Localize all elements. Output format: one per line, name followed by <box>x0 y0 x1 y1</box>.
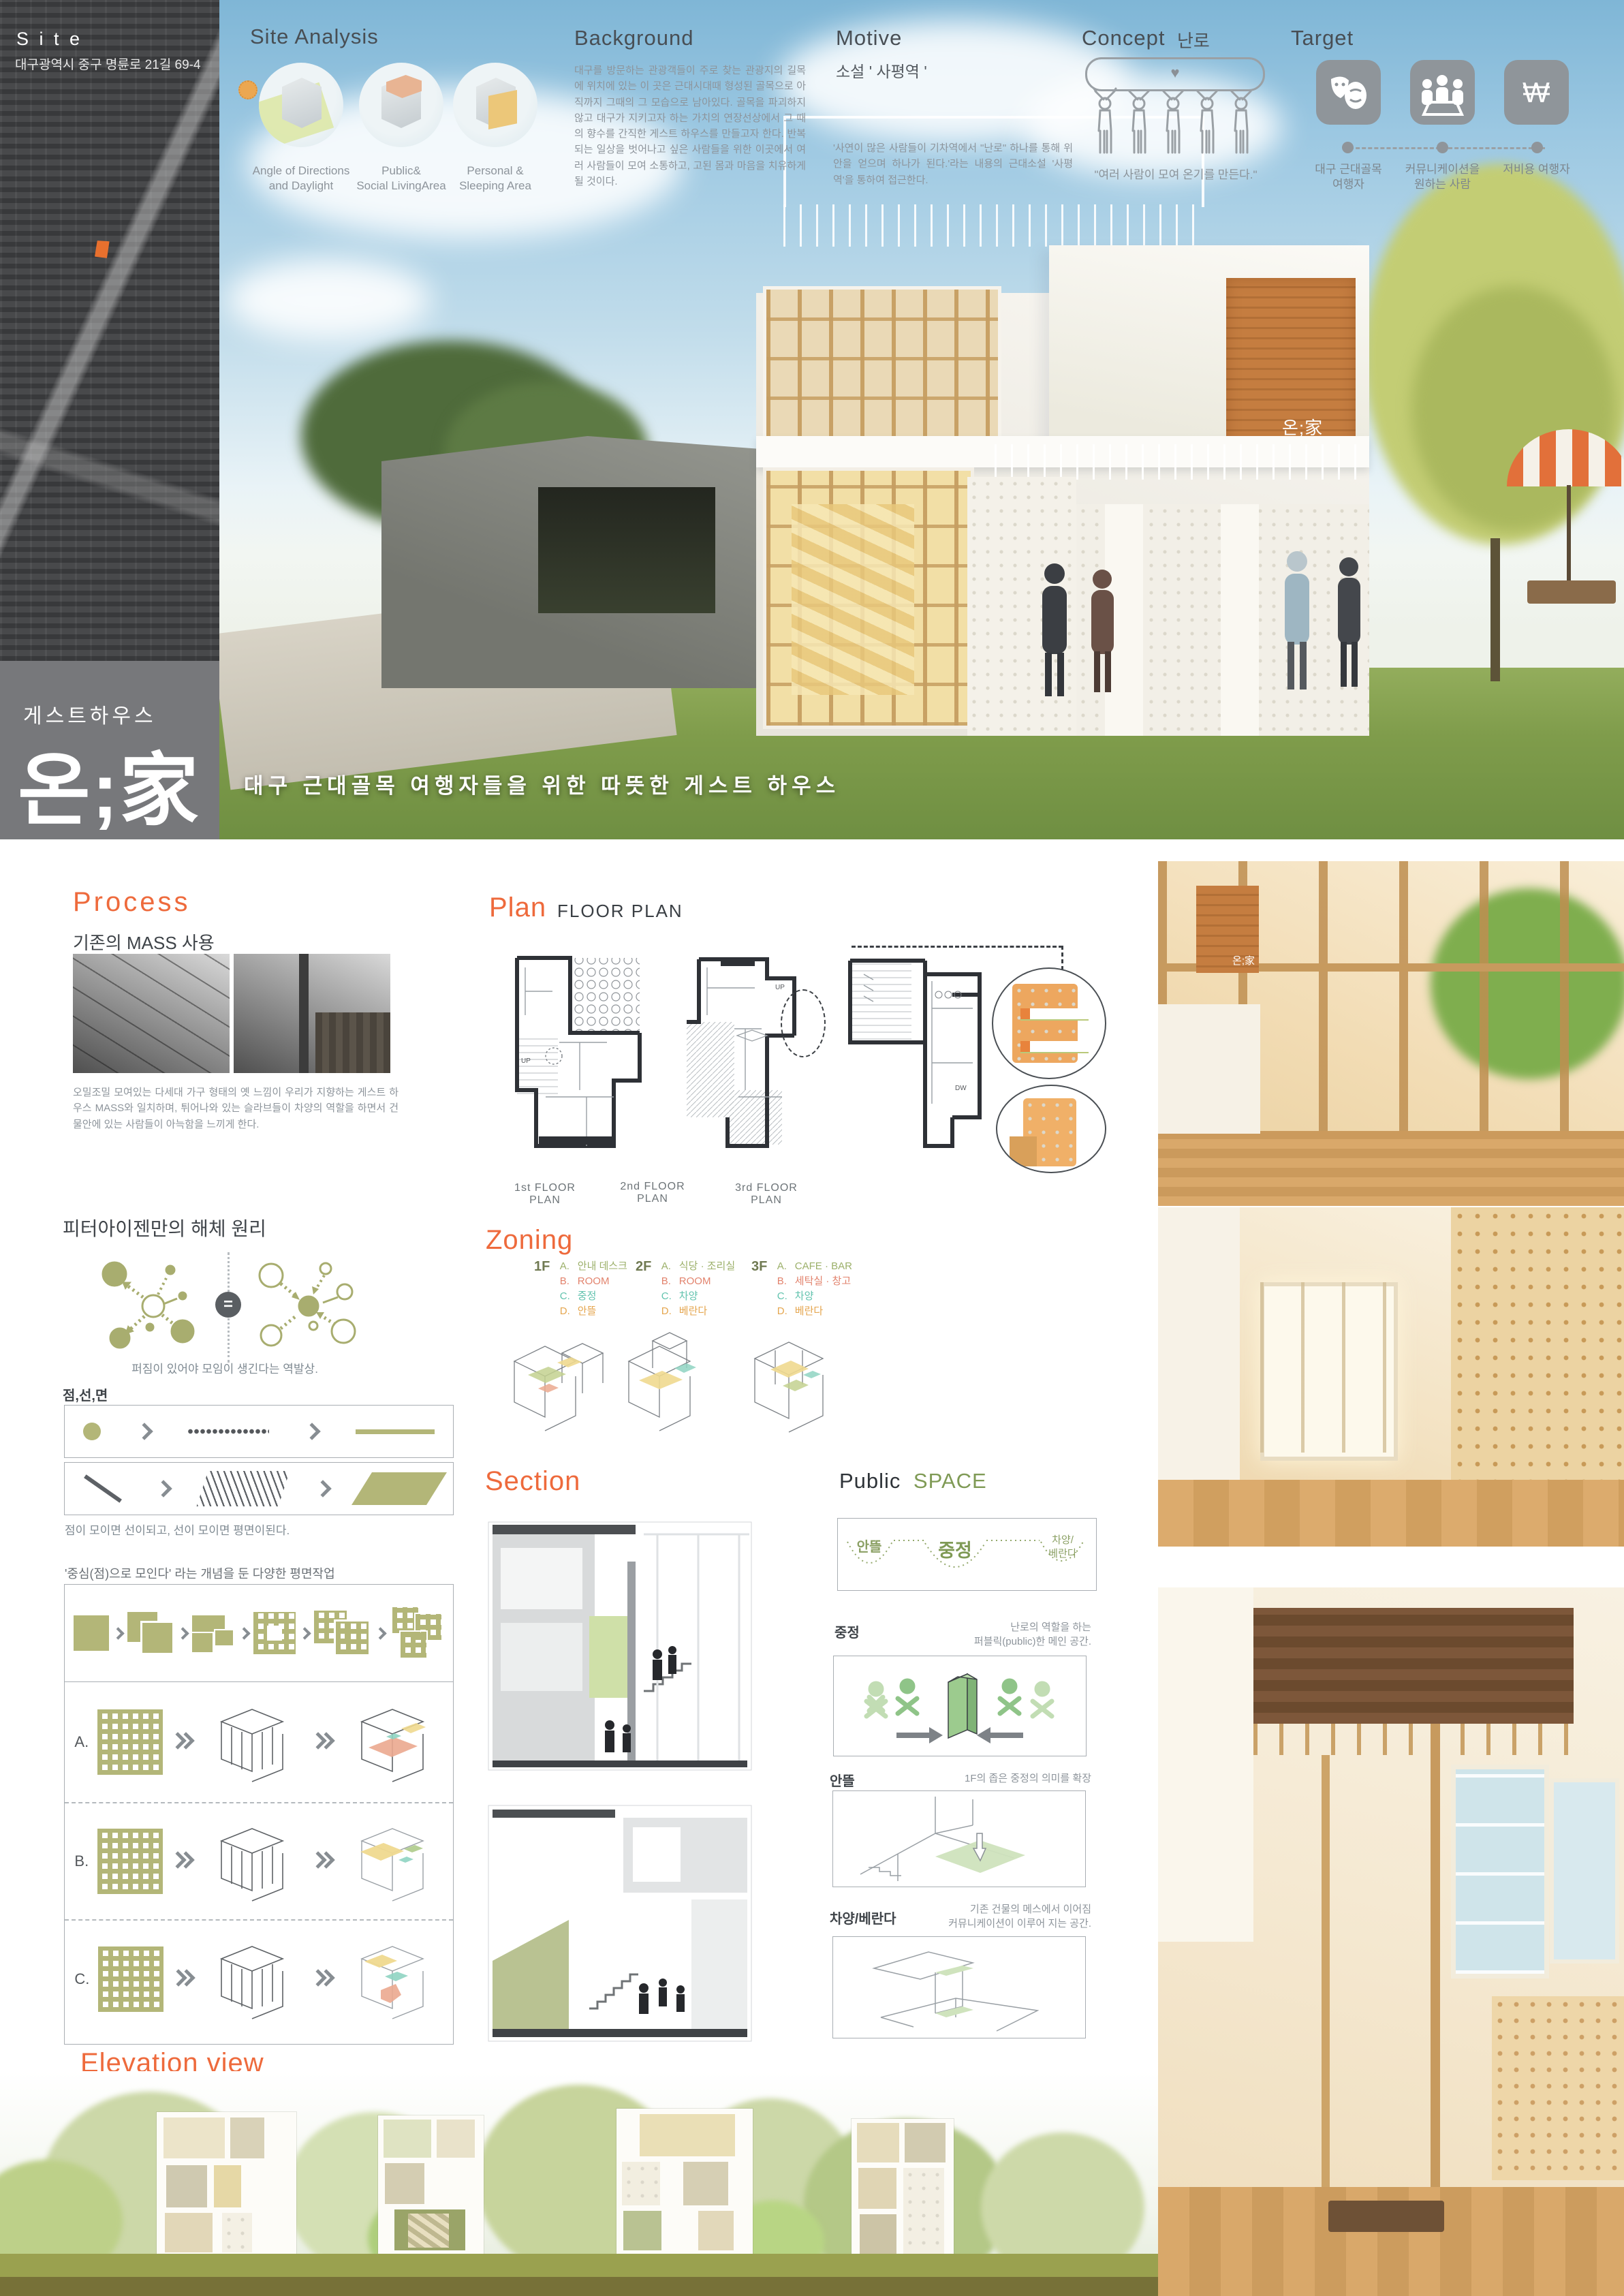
panel <box>640 2114 735 2156</box>
courtyard-desc: 난로의 역할을 하는 퍼블릭(public)한 메인 공간. <box>906 1620 1091 1649</box>
chevron-icon <box>314 1480 331 1497</box>
line-to-plane-box <box>64 1462 454 1515</box>
public-space-arc-diagram: 안뜰 중정 차양/ 베란다 <box>837 1518 1097 1591</box>
eisenman-diagram-gather <box>251 1255 366 1357</box>
cluster-pattern-squares <box>390 1607 444 1659</box>
panel <box>860 2214 896 2254</box>
svg-text:W: W <box>1522 76 1550 108</box>
dotted-line <box>187 1429 269 1434</box>
site-analysis-circle-3 <box>453 63 537 147</box>
zoning-floor-label: 1F <box>534 1259 550 1274</box>
courtyard-diagram <box>833 1656 1087 1756</box>
elevation-building-1 <box>157 2112 296 2255</box>
stair <box>408 2214 449 2248</box>
pattern-plan <box>97 1709 163 1775</box>
sky-window <box>1451 1765 1549 1979</box>
roof-railing <box>783 204 1199 247</box>
plane-concept-caption: '중심(점)으로 모인다' 라는 개념을 둔 다양한 평면작업 <box>65 1564 335 1582</box>
callout-dash-horizontal <box>852 946 1063 948</box>
elevation-ground-soil <box>0 2277 1158 2296</box>
plane-parallelogram <box>352 1472 447 1505</box>
legend-item: D.안뜰 <box>560 1304 627 1319</box>
zoning-legend: A.안내 데스크 B.ROOM C.중정 D.안뜰 <box>560 1259 627 1319</box>
elevation-building-2 <box>378 2115 484 2255</box>
site-address: 대구광역시 중구 명륜로 21길 69-4 <box>15 55 201 73</box>
bunk-mattress <box>1020 1008 1089 1019</box>
point-line-plane-title: 점,선,면 <box>63 1384 108 1404</box>
wood-floor <box>1158 1480 1624 1547</box>
legend-item: C.차양 <box>777 1289 852 1304</box>
panel <box>858 2168 896 2209</box>
double-chevron <box>172 1972 193 1987</box>
plan-transformation-box: A. B. C. <box>64 1584 454 2045</box>
elevation-building-3 <box>616 2109 753 2255</box>
theater-masks-icon <box>1316 60 1381 125</box>
square <box>192 1615 225 1632</box>
pattern-square <box>336 1622 369 1654</box>
panel <box>163 2117 225 2158</box>
logo-category: 게스트하우스 <box>23 699 157 729</box>
square <box>142 1623 172 1653</box>
logo-name: 온;家 <box>18 726 200 841</box>
eisenman-title: 피터아이젠만의 해체 원리 <box>63 1214 266 1241</box>
panel <box>857 2123 899 2162</box>
massing-row-a: A. <box>65 1682 453 1803</box>
svg-text:UP: UP <box>521 1057 531 1065</box>
zoning-group-2f: 2F A.식당 · 조리실 B.ROOM C.차양 D.베란다 <box>636 1259 735 1319</box>
bunk-callout-circle-1 <box>992 967 1106 1079</box>
public-title-accent: SPACE <box>913 1469 987 1493</box>
annex-opening <box>538 487 715 613</box>
label-line: and Daylight <box>247 179 356 193</box>
eisenman-diagram-spread <box>95 1255 211 1357</box>
wireframe-axon <box>201 1701 303 1783</box>
photo-fence <box>315 1012 390 1073</box>
label-line: 대구 근대골목 <box>1296 162 1401 177</box>
floor-plan-label-1: 1st FLOOR PLAN <box>501 1182 589 1207</box>
won-currency-icon: W <box>1504 60 1569 125</box>
double-chevron <box>172 1854 192 1870</box>
window-mullions <box>1260 1282 1390 1453</box>
concept-stove-pill: ♥ <box>1085 57 1265 91</box>
umbrella-pole <box>1567 485 1571 587</box>
motive-body: '사연이 많은 사람들이 기차역에서 "난로" 하나를 통해 위안을 얻으며 하… <box>833 140 1073 188</box>
old-alley-photo-2 <box>234 954 390 1073</box>
eisenman-caption: 퍼짐이 있어야 모임이 생긴다는 역발상. <box>65 1359 385 1376</box>
meeting-people-icon <box>1410 60 1475 125</box>
floor-plan-3: DW <box>843 954 986 1151</box>
axon-mini <box>282 78 322 128</box>
panel <box>384 2120 431 2158</box>
sun-icon <box>238 80 257 99</box>
transformation-row <box>65 1585 453 1682</box>
background-title: Background <box>574 26 693 50</box>
target-label-2: 커뮤니케이션을 원하는 사람 <box>1390 162 1495 192</box>
sky-window-2 <box>1550 1778 1619 1964</box>
awning-veranda-diagram <box>832 1936 1086 2038</box>
solid-square <box>74 1615 109 1651</box>
massing-row-c: C. <box>65 1921 453 2038</box>
double-chevron <box>312 1735 332 1750</box>
panel <box>166 2165 207 2207</box>
chevron-icon <box>112 1627 125 1639</box>
legend-item: B.ROOM <box>560 1274 627 1289</box>
wood-ceiling-slats <box>1253 1608 1574 1724</box>
bunk-base <box>1010 1136 1037 1166</box>
double-pattern-squares <box>314 1611 371 1656</box>
white-wall-upper <box>1158 1587 1253 1942</box>
legend-item: A.CAFE · BAR <box>777 1259 852 1274</box>
svg-text:UP: UP <box>775 984 785 991</box>
wireframe-axon <box>201 1938 303 2020</box>
site-map-image: S i t e 대구광역시 중구 명륜로 21길 69-4 <box>0 0 219 661</box>
public-title-main: Public <box>839 1469 901 1493</box>
perforated-volume-pilaster <box>1221 504 1259 736</box>
label-line: Angle of Directions <box>247 164 356 179</box>
chevron-icon <box>176 1627 189 1639</box>
legend-item: B.ROOM <box>661 1274 735 1289</box>
people-silhouettes-right <box>1267 545 1390 702</box>
chevron-icon <box>155 1480 172 1497</box>
chevron-icon <box>298 1627 311 1639</box>
pattern-plan <box>97 1829 163 1894</box>
sleeping-zone-patch <box>488 90 517 129</box>
wood-post <box>1322 1755 1330 2191</box>
concept-keyword: 난로 <box>1177 27 1210 52</box>
legend-item: B.세탁실 · 창고 <box>777 1274 852 1289</box>
low-table <box>1328 2201 1444 2232</box>
balcony-railing <box>995 444 1369 480</box>
pattern-square <box>401 1632 426 1658</box>
elevation-strip <box>0 2071 1158 2296</box>
square <box>215 1630 233 1645</box>
wireframe-axon <box>201 1820 303 1902</box>
front-yard-diagram <box>832 1790 1086 1887</box>
legend-item: C.중정 <box>560 1289 627 1304</box>
svg-text:차양/: 차양/ <box>1052 1534 1074 1546</box>
interior-sign-text: 온;家 <box>1232 953 1255 967</box>
background-body: 대구를 방문하는 관광객들이 주로 찾는 관광지의 길목에 위치에 있는 이 곳… <box>574 63 806 189</box>
zoning-floor-label: 2F <box>636 1259 651 1274</box>
pattern-square <box>253 1612 296 1654</box>
svg-text:안뜰: 안뜰 <box>857 1539 882 1555</box>
panel <box>622 2162 660 2205</box>
row-label: B. <box>74 1852 89 1870</box>
timeline-dot <box>1437 142 1448 153</box>
heart-icon: ♥ <box>1170 64 1179 81</box>
legend-item: A.식당 · 조리실 <box>661 1259 735 1274</box>
bunk-callout-circle-2 <box>996 1085 1106 1173</box>
interior-render-2 <box>1158 1207 1624 1547</box>
zoning-axon-1f <box>497 1320 613 1442</box>
pattern-square <box>392 1607 418 1633</box>
chevron-icon <box>238 1627 251 1639</box>
courtyard-diagram-svg <box>834 1656 1086 1756</box>
overlap-squares <box>127 1612 174 1654</box>
olive-line <box>356 1429 435 1434</box>
site-analysis-label-1: Angle of Directions and Daylight <box>247 164 356 193</box>
photo-pole <box>299 954 309 1073</box>
wood-post <box>1431 1724 1440 2187</box>
legend-item: C.차양 <box>661 1289 735 1304</box>
process-subtitle: 기존의 MASS 사용 <box>73 929 215 955</box>
concept-people-diagram <box>1085 87 1261 158</box>
point-dot <box>83 1423 101 1440</box>
point-to-line-box <box>64 1405 454 1458</box>
target-card-3: W <box>1504 60 1569 125</box>
plan-title: Plan <box>489 893 546 923</box>
square <box>192 1633 213 1652</box>
equals-badge: = <box>215 1292 241 1318</box>
callout-dash-vertical <box>1061 946 1063 970</box>
colored-axon <box>341 1701 443 1783</box>
panel <box>905 2123 946 2162</box>
chevron-icon <box>374 1627 386 1639</box>
floor-plan-1: UP <box>512 954 643 1151</box>
site-analysis-title: Site Analysis <box>250 25 379 49</box>
panel <box>385 2163 424 2204</box>
motive-subtitle: 소설 ' 사평역 ' <box>836 59 927 82</box>
wood-deck <box>1158 1131 1624 1206</box>
elevation-building-4 <box>852 2119 954 2255</box>
section-drawing-2 <box>487 1804 753 2043</box>
legend-item: D.베란다 <box>661 1304 735 1319</box>
courtyard-label: 중정 <box>834 1622 860 1641</box>
zoning-axon-3f <box>738 1320 854 1442</box>
double-chevron <box>172 1735 192 1750</box>
site-analysis-label-3: Personal & Sleeping Area <box>441 164 550 193</box>
timeline-dot <box>1342 142 1354 153</box>
process-title: Process <box>73 887 191 918</box>
cloud <box>226 259 431 341</box>
awning-veranda-label: 차양/베란다 <box>830 1908 896 1927</box>
label-line: 커뮤니케이션을 <box>1390 162 1495 177</box>
concept-caption: "여러 사람이 모여 온기를 만든다." <box>1087 165 1264 182</box>
panel <box>230 2117 264 2158</box>
plan-subtitle: FLOOR PLAN <box>557 901 683 922</box>
logo-block: 게스트하우스 온;家 <box>0 661 219 839</box>
label-line: 원하는 사람 <box>1390 177 1495 192</box>
target-card-1 <box>1316 60 1381 125</box>
front-yard-diagram-svg <box>833 1791 1085 1887</box>
legend-item: D.베란다 <box>777 1304 852 1319</box>
timeline-dot <box>1531 142 1543 153</box>
target-label-3: 저비용 여행자 <box>1484 162 1589 177</box>
zoning-floor-label: 3F <box>751 1259 767 1274</box>
callout-dash-ellipse <box>781 989 826 1057</box>
zoning-group-1f: 1F A.안내 데스크 B.ROOM C.중정 D.안뜰 <box>534 1259 627 1319</box>
hatch-lines <box>197 1471 290 1506</box>
process-body: 오밀조밀 모여있는 다세대 가구 형태의 옛 느낌이 우리가 지향하는 게스트 … <box>73 1085 399 1132</box>
photo-detail <box>73 954 230 1073</box>
svg-text:베란다: 베란다 <box>1048 1548 1077 1560</box>
l-shape-squares <box>192 1613 236 1654</box>
label-line: 저비용 여행자 <box>1484 162 1589 177</box>
floor-plan-label-2: 2nd FLOOR PLAN <box>608 1181 697 1205</box>
svg-text:중정: 중정 <box>938 1540 972 1561</box>
hero-tagline: 대구 근대골목 여행자들을 위한 따뜻한 게스트 하우스 <box>244 769 1198 799</box>
line-segment <box>84 1474 122 1503</box>
massing-row-b: B. <box>65 1803 453 1921</box>
panel <box>698 2211 734 2250</box>
colored-axon <box>341 1938 443 2020</box>
interior-render-3 <box>1158 1587 1624 2296</box>
perforated-screen-lower <box>1492 1996 1624 2180</box>
site-title: S i t e <box>16 29 82 50</box>
front-yard-label: 안뜰 <box>830 1770 855 1790</box>
label-line: Social LivingArea <box>347 179 456 193</box>
interior-render-1: 온;家 <box>1158 861 1624 1206</box>
section-drawing-1 <box>487 1521 753 1771</box>
picnic-table <box>1527 580 1616 604</box>
front-yard-desc: 1F의 좁은 중정의 의미를 확장 <box>892 1771 1091 1786</box>
white-wall <box>1158 1004 1260 1134</box>
label-line: Personal & <box>441 164 550 179</box>
people-silhouettes-left <box>1022 559 1185 702</box>
awning-veranda-desc: 기존 건물의 메스에서 이어짐 커뮤니케이션이 이루어 지는 공간. <box>906 1902 1091 1931</box>
zoning-legend: A.CAFE · BAR B.세탁실 · 창고 C.차양 D.베란다 <box>777 1259 852 1319</box>
zoning-title: Zoning <box>486 1225 573 1256</box>
zoning-group-3f: 3F A.CAFE · BAR B.세탁실 · 창고 C.차양 D.베란다 <box>751 1259 852 1319</box>
label-line: 여행자 <box>1296 177 1401 192</box>
site-marker <box>93 238 111 260</box>
elevation-ground-grass <box>0 2254 1158 2277</box>
floor-plan-label-3: 3rd FLOOR PLAN <box>722 1182 811 1207</box>
section-title: Section <box>485 1466 580 1497</box>
old-alley-photo-1 <box>73 954 230 1073</box>
panel <box>222 2213 252 2252</box>
tree-right-2 <box>1411 286 1616 531</box>
target-title: Target <box>1291 26 1354 50</box>
row-label: C. <box>74 1970 89 1988</box>
site-analysis-circle-1 <box>259 63 343 147</box>
target-card-2 <box>1410 60 1475 125</box>
zoning-legend: A.식당 · 조리실 B.ROOM C.차양 D.베란다 <box>661 1259 735 1319</box>
presentation-board: 온;家 대구 근대골목 여행자들을 위한 따뜻한 게스트 하우스 S i t e… <box>0 0 1624 2296</box>
site-analysis-label-2: Public& Social LivingArea <box>347 164 456 193</box>
double-chevron <box>312 1854 332 1870</box>
interior-sign-panel: 온;家 <box>1196 886 1259 973</box>
panel <box>165 2213 213 2252</box>
svg-text:DW: DW <box>955 1085 967 1092</box>
chevron-icon <box>136 1423 153 1440</box>
label-line: Sleeping Area <box>441 179 550 193</box>
panel <box>683 2162 728 2205</box>
panel <box>214 2165 241 2207</box>
chevron-icon <box>304 1423 321 1440</box>
left-wall <box>1158 1207 1240 1493</box>
target-label-1: 대구 근대골목 여행자 <box>1296 162 1401 192</box>
equals-sign: = <box>223 1295 233 1314</box>
tree-trunk <box>1490 538 1500 681</box>
point-line-plane-caption: 점이 모이면 선이되고, 선이 모이면 평면이된다. <box>65 1521 290 1538</box>
concept-title: Concept <box>1082 26 1165 50</box>
panel <box>437 2120 475 2158</box>
awning-veranda-diagram-svg <box>833 1937 1085 2038</box>
site-analysis-circle-2 <box>359 63 443 147</box>
hole <box>267 1626 282 1641</box>
motive-title: Motive <box>836 26 902 50</box>
double-chevron <box>312 1972 332 1987</box>
mezzanine-rail <box>1253 1724 1574 1755</box>
upper-glazing <box>763 286 1001 443</box>
pattern-plan <box>98 1946 163 2012</box>
row-label: A. <box>74 1733 89 1751</box>
bunk-mattress <box>1020 1041 1089 1052</box>
legend-item: A.안내 데스크 <box>560 1259 627 1274</box>
public-space-title: Public SPACE <box>839 1469 987 1493</box>
label-line: Public& <box>347 164 456 179</box>
arc-diagram: 안뜰 중정 차양/ 베란다 <box>838 1519 1096 1590</box>
colored-axon <box>341 1820 443 1902</box>
panel <box>903 2168 944 2254</box>
stair-glow <box>792 504 914 695</box>
zoning-axon-2f <box>612 1320 728 1442</box>
panel <box>623 2211 661 2250</box>
